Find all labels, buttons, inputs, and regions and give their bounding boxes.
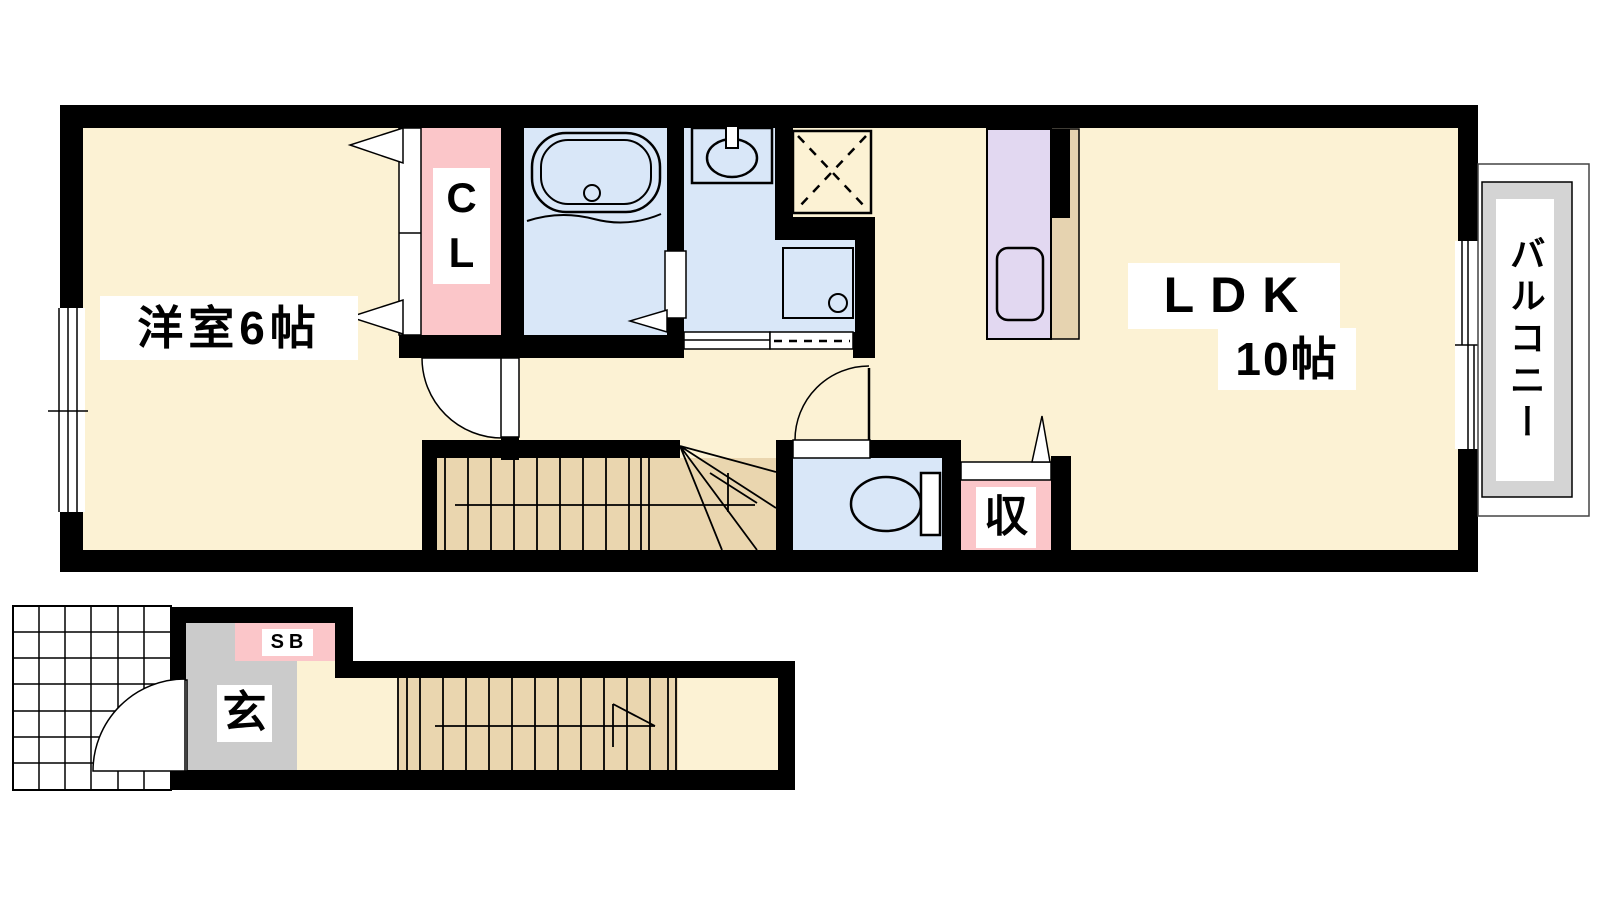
lower-unit xyxy=(13,606,795,790)
bathroom-floor xyxy=(524,128,667,335)
washroom-folding-door xyxy=(770,332,853,349)
ldk-size-label: 10帖 xyxy=(1218,328,1356,390)
washroom-sliding-door xyxy=(684,332,770,349)
washbasin xyxy=(692,126,772,183)
floor-plan: 洋室6帖 C L LDK 10帖 収 バルコニー 玄 SB xyxy=(0,0,1600,900)
entrance-divider-wall xyxy=(335,607,353,678)
western-room-label: 洋室6帖 xyxy=(100,296,358,360)
ldk-label: LDK xyxy=(1128,263,1340,329)
window-balcony xyxy=(1455,241,1481,449)
refrigerator-space xyxy=(793,131,871,213)
kitchen-sink xyxy=(997,248,1043,320)
shoe-box-label: SB xyxy=(262,629,313,656)
closet-label: C L xyxy=(433,168,490,284)
floor-plan-drawing xyxy=(0,0,1600,900)
toilet xyxy=(851,473,940,535)
window-left xyxy=(48,308,88,512)
entrance-label: 玄 xyxy=(217,685,272,742)
stairs-lower-floor xyxy=(398,678,678,770)
storage-label: 収 xyxy=(976,487,1036,548)
balcony-label: バルコニー xyxy=(1496,199,1554,481)
kitchen-side-wall xyxy=(1051,129,1070,218)
